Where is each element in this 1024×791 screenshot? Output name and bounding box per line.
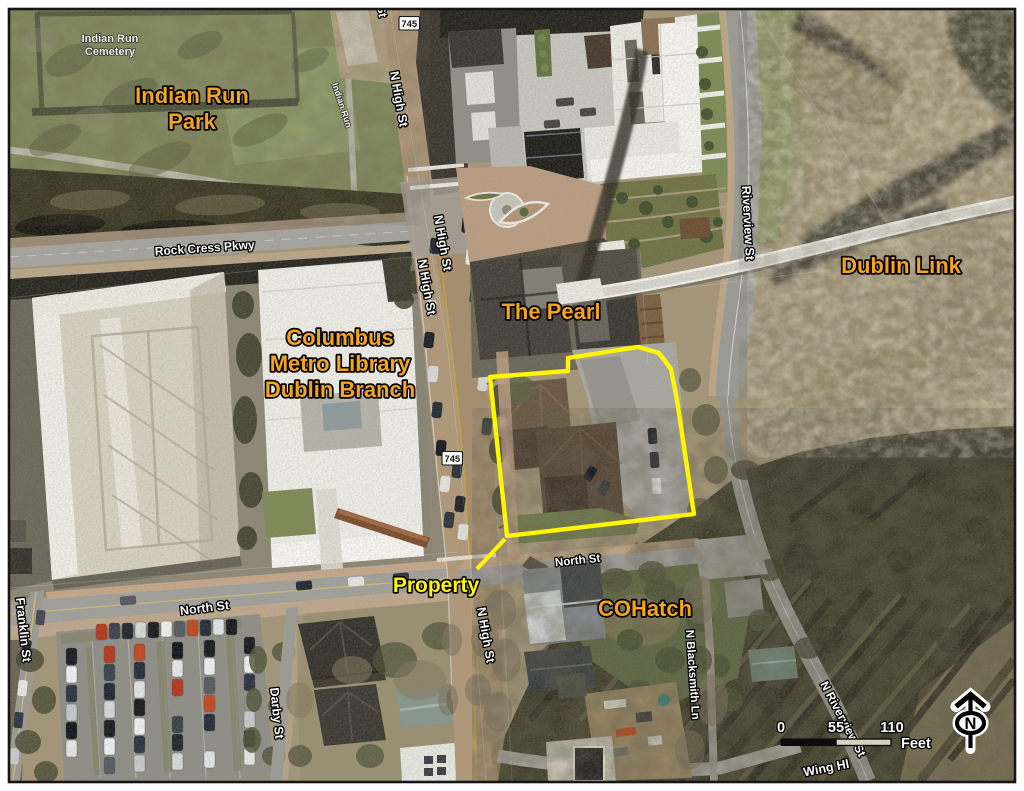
svg-text:Property: Property — [393, 574, 480, 597]
svg-text:The Pearl: The Pearl — [501, 299, 600, 324]
svg-text:Feet: Feet — [901, 736, 931, 752]
svg-text:110: 110 — [880, 720, 903, 736]
svg-text:Cemetery: Cemetery — [85, 46, 136, 58]
svg-text:N: N — [965, 715, 977, 733]
svg-text:Indian Run: Indian Run — [82, 33, 139, 45]
svg-text:Columbus: Columbus — [286, 325, 394, 350]
svg-text:Dublin Branch: Dublin Branch — [265, 377, 415, 402]
svg-text:Indian Run: Indian Run — [135, 83, 249, 108]
svg-text:Park: Park — [168, 109, 216, 134]
svg-text:0: 0 — [777, 720, 785, 736]
svg-text:COHatch: COHatch — [598, 596, 692, 621]
svg-text:745: 745 — [444, 454, 461, 465]
svg-text:Metro Library: Metro Library — [270, 351, 411, 376]
svg-text:745: 745 — [401, 19, 418, 30]
svg-text:55: 55 — [828, 720, 844, 736]
svg-text:Dublin Link: Dublin Link — [841, 253, 962, 278]
